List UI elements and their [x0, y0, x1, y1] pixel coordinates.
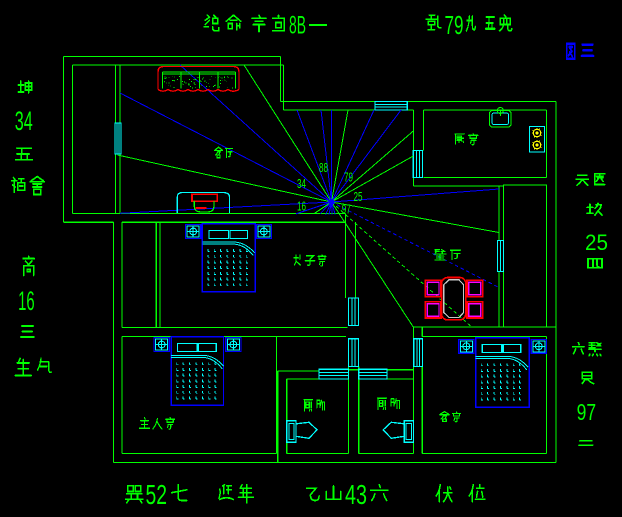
- svg-text:16: 16: [297, 200, 306, 214]
- svg-text:88: 88: [319, 161, 328, 175]
- svg-text:34: 34: [297, 177, 306, 191]
- svg-text:79: 79: [344, 171, 353, 185]
- svg-text:79: 79: [445, 10, 464, 40]
- svg-text:34: 34: [15, 106, 33, 136]
- svg-text:52: 52: [146, 479, 168, 510]
- svg-text:97: 97: [342, 203, 351, 217]
- svg-text:25: 25: [585, 230, 608, 255]
- svg-text:25: 25: [354, 190, 363, 204]
- svg-text:16: 16: [18, 286, 34, 316]
- svg-text:97: 97: [577, 399, 597, 425]
- svg-text:8B: 8B: [289, 12, 306, 40]
- svg-text:43: 43: [345, 479, 367, 510]
